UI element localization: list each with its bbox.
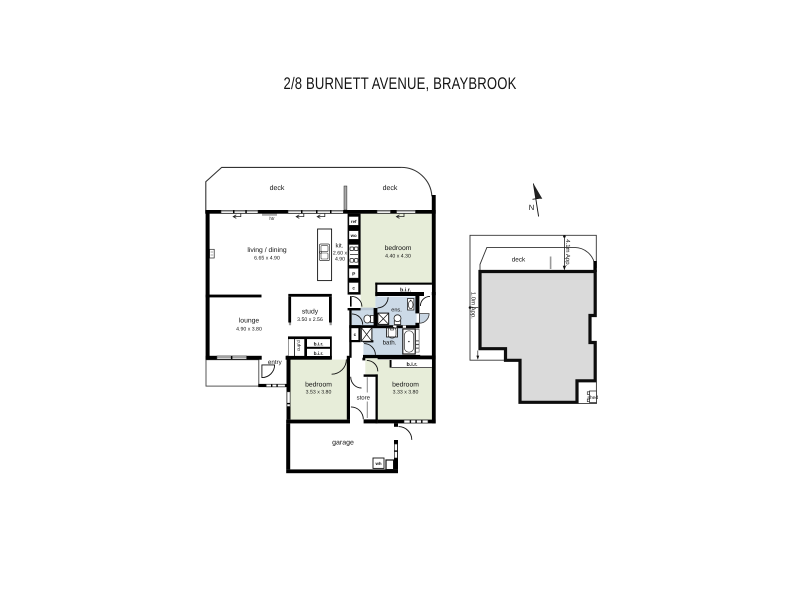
- svg-text:c: c: [352, 286, 355, 291]
- svg-text:bedroom: bedroom: [305, 382, 332, 389]
- svg-text:shed: shed: [587, 395, 598, 401]
- svg-text:garage: garage: [332, 440, 354, 447]
- svg-text:4.90: 4.90: [335, 257, 345, 263]
- svg-text:b.i.r.: b.i.r.: [314, 341, 324, 347]
- svg-text:3.50 x 2.56: 3.50 x 2.56: [297, 317, 323, 323]
- svg-text:htr: htr: [269, 216, 275, 221]
- svg-text:b.i.r.: b.i.r.: [400, 287, 412, 293]
- svg-text:ens.: ens.: [391, 308, 402, 314]
- svg-text:entry: entry: [268, 359, 283, 366]
- svg-text:wh: wh: [374, 461, 381, 466]
- svg-text:ref: ref: [351, 219, 357, 224]
- svg-text:bedroom: bedroom: [385, 245, 412, 252]
- svg-text:1.0m App.: 1.0m App.: [469, 292, 476, 319]
- svg-text:living / dining: living / dining: [247, 247, 287, 254]
- svg-text:cup'd: cup'd: [296, 340, 301, 351]
- svg-text:store: store: [357, 396, 371, 402]
- svg-text:wo: wo: [350, 233, 357, 238]
- svg-text:4.40 x 4.30: 4.40 x 4.30: [385, 254, 411, 260]
- svg-text:study: study: [302, 309, 319, 316]
- svg-text:2/8 BURNETT AVENUE, BRAYBROOK: 2/8 BURNETT AVENUE, BRAYBROOK: [284, 74, 517, 93]
- svg-text:bath.: bath.: [383, 340, 397, 347]
- svg-text:deck: deck: [512, 257, 526, 264]
- svg-text:b.i.r.: b.i.r.: [406, 362, 418, 368]
- svg-text:deck: deck: [270, 184, 285, 192]
- svg-text:3.53 x 3.80: 3.53 x 3.80: [306, 390, 332, 396]
- svg-text:c: c: [354, 332, 357, 337]
- svg-text:lounge: lounge: [239, 318, 260, 325]
- svg-text:6.65 x 4.90: 6.65 x 4.90: [254, 256, 280, 262]
- svg-text:N: N: [529, 203, 534, 212]
- svg-text:4.90 x 3.80: 4.90 x 3.80: [236, 327, 262, 333]
- svg-text:3.33 x 3.80: 3.33 x 3.80: [393, 390, 419, 396]
- svg-text:4.1m App.: 4.1m App.: [564, 239, 571, 266]
- svg-text:kit.: kit.: [336, 243, 344, 250]
- svg-text:b.i.r.: b.i.r.: [314, 351, 324, 357]
- svg-text:deck: deck: [383, 184, 398, 192]
- svg-text:bedroom: bedroom: [392, 382, 419, 389]
